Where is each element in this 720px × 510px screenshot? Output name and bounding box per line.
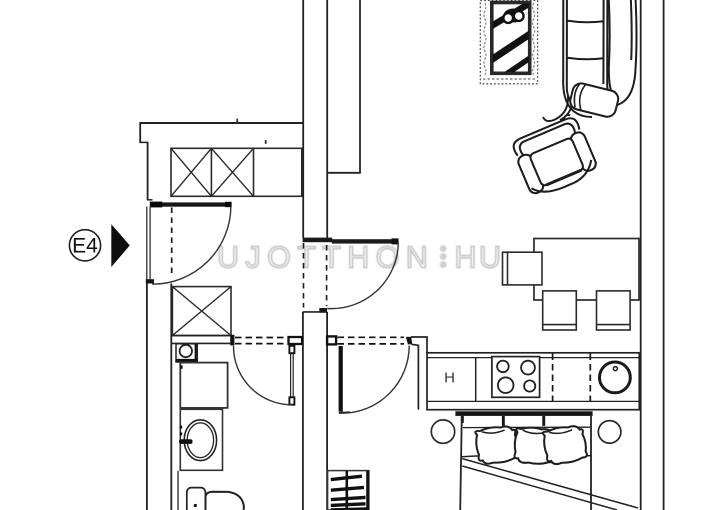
svg-text:E4: E4	[72, 235, 98, 258]
svg-text:UJOTTHON: UJOTTHON	[217, 240, 434, 274]
svg-text:HU: HU	[455, 240, 504, 274]
svg-text:H: H	[444, 370, 455, 387]
